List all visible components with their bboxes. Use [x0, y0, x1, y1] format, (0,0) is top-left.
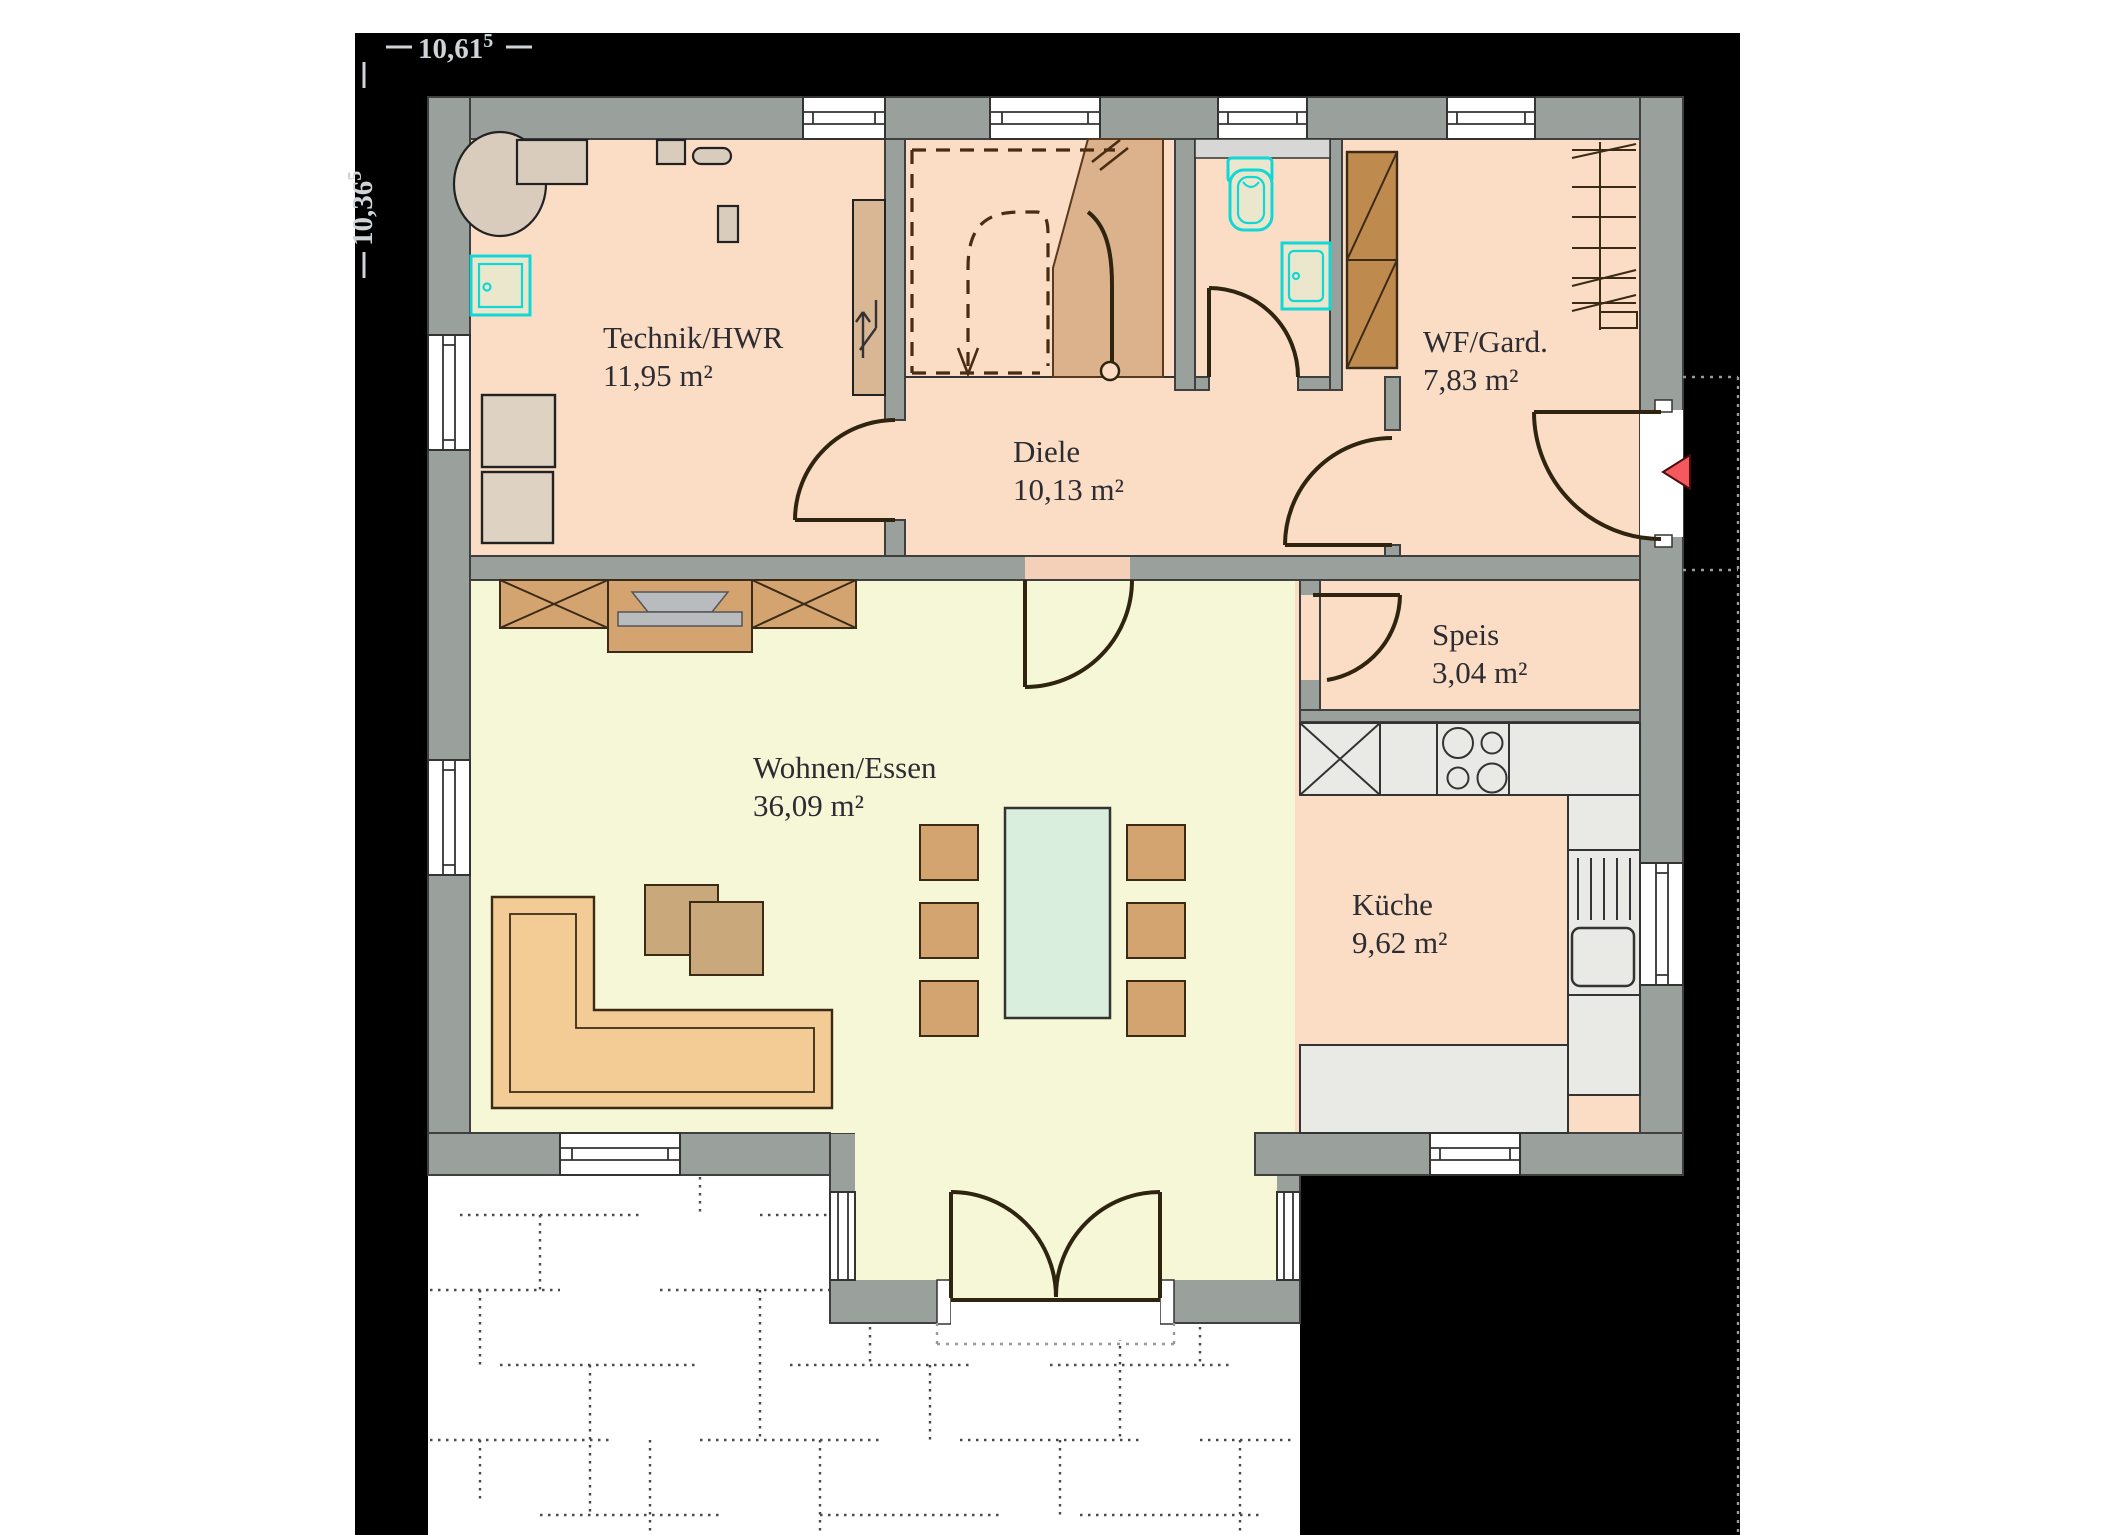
dimension-height-label: 10,365 [344, 171, 379, 246]
washing-machine [482, 395, 555, 467]
wall-technik-stairs [885, 139, 905, 420]
chair [1127, 981, 1185, 1036]
window [1640, 863, 1683, 985]
window [1430, 1133, 1520, 1175]
kitchen-sink [1572, 928, 1634, 986]
room-label-wohnen: Wohnen/Essen [753, 750, 937, 785]
speis-door-opening [1301, 595, 1319, 680]
bay-window-right [1277, 1192, 1300, 1280]
room-label-kueche: Küche [1352, 887, 1433, 922]
stair-post [1101, 362, 1119, 380]
window [990, 97, 1100, 139]
room-area-wohnen: 36,09 m² [753, 788, 864, 823]
washbasin [1282, 243, 1330, 309]
dining-set [920, 808, 1185, 1036]
chair [920, 903, 978, 958]
toilet [1228, 158, 1272, 230]
chair [1127, 903, 1185, 958]
dryer [482, 472, 553, 543]
wc-shelf [1195, 139, 1330, 158]
dimension-width-label: 10,615 [418, 30, 493, 65]
room-label-diele: Diele [1013, 434, 1080, 469]
floorplan-svg: Technik/HWR 11,95 m² Diele 10,13 m² WF/G… [0, 0, 2126, 1535]
door-sill [951, 1302, 1160, 1340]
wall-stairs-wc [1175, 139, 1195, 390]
room-area-diele: 10,13 m² [1013, 472, 1124, 507]
bay-floor [855, 1133, 1277, 1280]
room-label-technik: Technik/HWR [603, 320, 784, 355]
tv-icon [632, 592, 728, 612]
window [428, 335, 470, 450]
chair [1127, 825, 1185, 880]
door-jamb [1655, 535, 1672, 547]
wall-technik-stub [885, 520, 905, 556]
room-area-wf: 7,83 m² [1423, 362, 1518, 397]
window [803, 97, 885, 139]
room-area-speis: 3,04 m² [1432, 655, 1527, 690]
door-jamb [937, 1280, 951, 1324]
wall-wf-stub [1385, 377, 1400, 430]
cabinet-small [718, 206, 738, 242]
floorplan-page: Technik/HWR 11,95 m² Diele 10,13 m² WF/G… [0, 0, 2126, 1535]
wall-left [428, 97, 470, 1175]
wardrobe [1347, 152, 1397, 368]
kitchen-counter-bottom [1300, 1045, 1568, 1133]
cabinet [517, 140, 587, 184]
cabinet-small [657, 140, 685, 164]
door-jamb [1160, 1280, 1174, 1324]
terrace-bay [830, 1133, 1300, 1340]
window [1218, 97, 1307, 139]
diele-door-opening [1025, 557, 1130, 579]
window [428, 760, 470, 875]
room-label-speis: Speis [1432, 617, 1499, 652]
wall-wc-bottom [1298, 377, 1330, 390]
tv-stand [618, 612, 742, 626]
room-label-wf: WF/Gard. [1423, 324, 1548, 359]
chair [920, 825, 978, 880]
window [1447, 97, 1535, 139]
wall-right [1640, 97, 1683, 1175]
room-area-kueche: 9,62 m² [1352, 925, 1447, 960]
dining-table [1005, 808, 1110, 1018]
bay-window-left [830, 1192, 855, 1280]
window [560, 1133, 680, 1175]
drainer [1568, 850, 1640, 920]
chair [920, 981, 978, 1036]
shelf-pill [693, 148, 731, 164]
wall-speis-bottom [1300, 710, 1640, 722]
room-area-technik: 11,95 m² [603, 358, 713, 393]
wall-wc-right [1330, 139, 1342, 390]
coffee-table [690, 902, 763, 975]
chimney [853, 200, 885, 395]
utility-sink [471, 256, 530, 315]
wall-wc-bottom [1195, 377, 1209, 390]
